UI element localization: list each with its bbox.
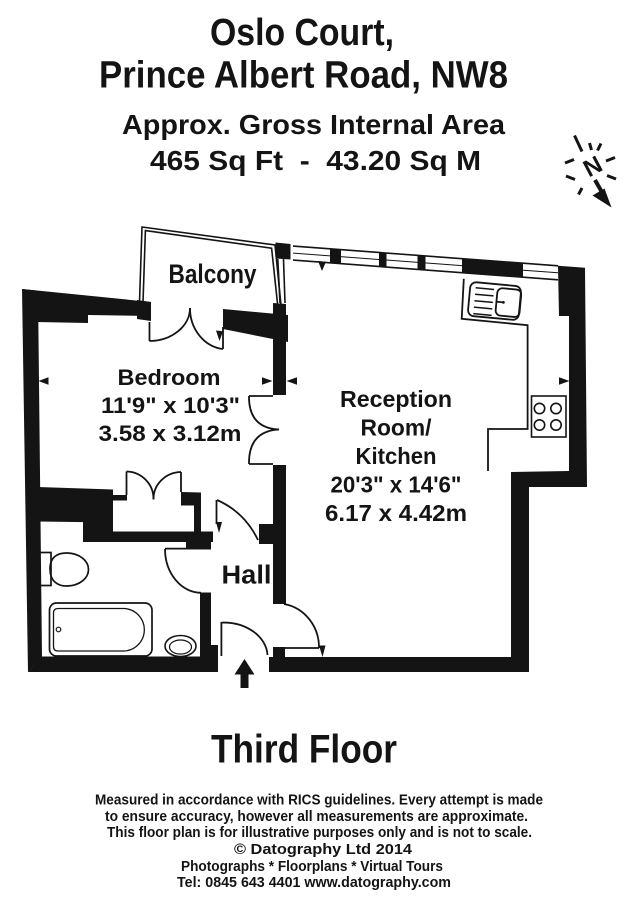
svg-text:6.17 x 4.42m: 6.17 x 4.42m [325,500,467,526]
svg-text:to ensure accuracy, however al: to ensure accuracy, however all measurem… [105,809,528,825]
svg-text:465 Sq Ft - 43.20 Sq M: 465 Sq Ft - 43.20 Sq M [150,145,481,176]
svg-text:© Datography Ltd 2014: © Datography Ltd 2014 [234,842,412,858]
svg-text:Tel: 0845 643 4401 www.datogra: Tel: 0845 643 4401 www.datography.com [177,875,451,891]
svg-text:Measured in accordance with RI: Measured in accordance with RICS guideli… [95,793,543,809]
svg-text:Reception: Reception [340,386,452,412]
svg-text:Third Floor: Third Floor [211,728,397,772]
svg-text:Balcony: Balcony [169,259,257,289]
svg-text:Prince Albert Road, NW8: Prince Albert Road, NW8 [99,55,508,97]
svg-text:3.58 x 3.12m: 3.58 x 3.12m [99,421,242,446]
svg-text:Bedroom: Bedroom [118,365,221,390]
svg-text:Hall: Hall [222,562,272,590]
svg-text:Kitchen: Kitchen [356,443,437,469]
svg-text:Approx. Gross Internal Area: Approx. Gross Internal Area [122,109,505,140]
svg-text:Photographs * Floorplans * Vir: Photographs * Floorplans * Virtual Tours [181,859,443,875]
svg-text:This floor plan is for illustr: This floor plan is for illustrative purp… [107,825,532,841]
svg-text:N: N [579,151,607,183]
svg-text:Oslo Court,: Oslo Court, [210,12,394,54]
svg-text:Room/: Room/ [361,415,432,441]
svg-text:20'3" x 14'6": 20'3" x 14'6" [331,472,462,498]
svg-text:11'9" x 10'3": 11'9" x 10'3" [101,393,240,418]
